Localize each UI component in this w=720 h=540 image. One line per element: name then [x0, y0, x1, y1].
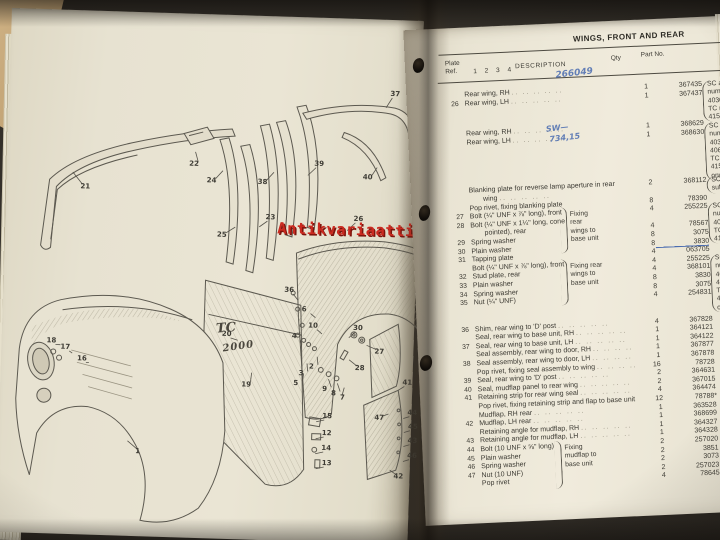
margin-note-line: numbered 4	[707, 87, 720, 97]
callout-42: 42	[393, 472, 403, 480]
description: Nut (10 UNF)	[481, 470, 523, 479]
plate-ref	[442, 97, 458, 98]
plate-ref	[457, 409, 473, 410]
part-no: 368630	[650, 129, 704, 138]
margin-note: SC annumb4030840300TC m41502onwa	[710, 254, 720, 313]
callout-leader-lines	[0, 8, 424, 540]
qty: 4	[631, 248, 655, 256]
plate-ref: 45	[459, 455, 475, 463]
margin-note-line: suffix 'C	[712, 184, 720, 193]
qty: 8	[631, 240, 655, 248]
plate-ref: 34	[451, 291, 467, 299]
plate-ref: 39	[455, 378, 471, 386]
qty: 2	[628, 180, 652, 188]
qty: 1	[635, 335, 659, 343]
description: Stud plate, rear	[472, 272, 520, 281]
qty: 1	[639, 404, 663, 412]
plate-ref: 30	[449, 248, 465, 256]
part-no: 254831	[657, 289, 711, 298]
callout-36: 36	[284, 286, 294, 294]
fixing-braces-layer: Fixingrearwings tobase unitFixing rearwi…	[403, 16, 719, 30]
qty: 4	[630, 205, 654, 213]
callout-8: 8	[331, 389, 336, 397]
margin-note-line: 4030881	[713, 218, 720, 227]
qty: 4	[632, 265, 656, 273]
qty: 4	[630, 222, 654, 230]
margin-note-line: TC m	[716, 287, 720, 296]
margin-note-line: TC models	[708, 104, 720, 114]
col-nums: 1 2 3 4	[473, 66, 514, 75]
margin-note-line: numb	[715, 262, 720, 271]
qty: 1	[636, 343, 660, 351]
description: Rear wing, RH	[466, 129, 512, 138]
col-description: DESCRIPTION	[515, 61, 566, 70]
qty: 8	[633, 283, 657, 291]
qty: 1	[640, 429, 664, 437]
col-qty: Qty	[611, 54, 621, 61]
plate-ref: 29	[449, 240, 465, 248]
plate-ref: 31	[450, 257, 466, 265]
callout-22: 22	[189, 160, 199, 168]
qty: 4	[633, 291, 657, 299]
callout-47: 47	[374, 414, 384, 422]
callout-18: 18	[46, 336, 56, 344]
callout-16: 16	[77, 354, 87, 362]
page-title: WINGS, FRONT AND REAR	[554, 29, 704, 45]
description: Spring washer	[481, 461, 526, 470]
plate-ref: 26	[443, 100, 459, 108]
description: Rear wing, RH	[464, 90, 510, 99]
qty: 4	[635, 318, 659, 326]
callout-25: 25	[217, 231, 227, 239]
plate-ref	[458, 434, 474, 435]
qty: 1	[624, 92, 648, 100]
plate-ref	[448, 210, 464, 211]
callout-40: 40	[363, 173, 373, 181]
margin-note-line: 4150259	[711, 162, 720, 172]
fixing-group: Fixing rearwings tobase unit	[560, 258, 604, 306]
qty: 1	[639, 412, 663, 420]
margin-note-line: number	[713, 210, 720, 219]
plate-ref: 28	[448, 223, 464, 231]
qty: 8	[631, 231, 655, 239]
qty: 2	[641, 455, 665, 463]
margin-note-line: 415025	[714, 234, 720, 243]
plate-ref: 47	[459, 472, 475, 480]
brace	[560, 259, 569, 305]
description: Spring washer	[471, 237, 516, 246]
brace	[560, 207, 569, 253]
margin-note-line: 40308	[716, 270, 720, 279]
plate-ref	[449, 236, 465, 237]
part-no	[653, 191, 707, 193]
qty: 2	[637, 369, 661, 377]
callout-46: 46	[407, 452, 417, 460]
col-plate-ref: Plate Ref.	[445, 60, 460, 76]
qty: 1	[626, 122, 650, 130]
plate-ref	[453, 340, 469, 341]
description: Nut (¼" UNF)	[474, 298, 516, 307]
callout-13: 13	[322, 459, 332, 467]
margin-note: SC modsuffix 'C	[706, 175, 720, 193]
qty: 2	[637, 378, 661, 386]
callout-43: 43	[407, 437, 417, 445]
qty: 12	[639, 395, 663, 403]
fixing-label: Fixing rearwings tobase unit	[570, 258, 604, 305]
plate-ref: 37	[454, 344, 470, 352]
callout-21: 21	[80, 182, 90, 190]
callout-9: 9	[322, 385, 327, 393]
tc-badge: TC	[216, 320, 237, 336]
plate-ref: 35	[452, 300, 468, 308]
plate-ref	[457, 417, 473, 418]
part-no: 367437	[648, 89, 702, 98]
qty: 1	[639, 421, 663, 429]
right-page: WINGS, FRONT AND REAR Plate Ref. 1 2 3 4…	[403, 16, 720, 526]
margin-note-line: 41502590B,	[708, 112, 720, 122]
plate-ref: 33	[451, 283, 467, 291]
callout-15: 15	[322, 412, 332, 420]
plate-ref: 38	[454, 361, 470, 369]
margin-note-line: numbered	[709, 129, 720, 139]
callout-3: 3	[299, 369, 304, 377]
plate-ref: 43	[458, 438, 474, 446]
description: Tapping plate	[472, 255, 514, 264]
margin-note: SC and Autnumbered 440308814E,TC models4…	[702, 79, 720, 122]
qty: 1	[636, 352, 660, 360]
margin-note-line: 40300815E,	[710, 137, 720, 147]
margin-note-line: SC an	[715, 254, 720, 263]
description: Rear wing, LH	[465, 98, 510, 107]
qty: 1	[624, 83, 648, 91]
qty	[629, 193, 653, 194]
plate-ref	[447, 202, 463, 203]
qty: 2	[640, 447, 664, 455]
callout-39: 39	[314, 160, 324, 168]
callout-17: 17	[60, 343, 70, 351]
plate-ref: 42	[457, 421, 473, 429]
plate-ref	[447, 193, 463, 194]
plate-ref: 36	[453, 326, 469, 334]
fixing-group: Fixingmudflap tobase unit	[554, 439, 598, 489]
book-photo: 2122242523383937402636610302728201942359…	[0, 0, 720, 540]
col-part-no: Part No.	[641, 51, 665, 59]
fixing-label-line: base unit	[571, 278, 603, 288]
description: Plain washer	[471, 246, 511, 255]
callout-14: 14	[321, 444, 331, 452]
plate-ref: 40	[456, 386, 472, 394]
description: Spring washer	[473, 289, 518, 298]
callout-38: 38	[258, 178, 268, 186]
plate-ref	[455, 374, 471, 375]
plate-ref	[460, 486, 476, 487]
left-page: 2122242523383937402636610302728201942359…	[0, 8, 424, 540]
qty: 4	[642, 472, 666, 480]
qty: 8	[629, 197, 653, 205]
plate-ref	[454, 357, 470, 358]
qty: 4	[638, 386, 662, 394]
callout-44: 44	[407, 409, 417, 417]
fixing-label: Fixingrearwings tobase unit	[570, 206, 600, 253]
brace	[554, 441, 563, 489]
plate-ref: 41	[456, 395, 472, 403]
margin-notes-layer: SC and Autnumbered 440308814E,TC models4…	[403, 16, 719, 30]
margin-note: SC and Anumbered40300815E,40600018E,TC m…	[704, 121, 720, 181]
qty: 16	[637, 361, 661, 369]
margin-note: SC andnumber4030881TC mo415025	[707, 201, 720, 244]
margin-note-line: 40308814E,	[708, 96, 720, 106]
fixing-label: Fixingmudflap tobase unit	[564, 439, 598, 488]
qty: 4	[632, 257, 656, 265]
part-no: 78645	[666, 470, 720, 479]
qty: 2	[640, 438, 664, 446]
plate-ref: 32	[450, 274, 466, 282]
description: Plain washer	[481, 453, 521, 462]
callout-28: 28	[355, 364, 365, 372]
leader-dots: .. .. .. .. ..	[591, 346, 636, 354]
margin-note-line: 40600018E,	[710, 146, 720, 156]
callout-7: 7	[340, 393, 345, 401]
description: wing	[469, 195, 498, 203]
margin-note-line: TC mode	[710, 154, 720, 164]
callout-30: 30	[353, 324, 363, 332]
margin-note-line: TC mo	[714, 226, 720, 235]
plate-ref	[444, 136, 460, 137]
plate-ref: 27	[448, 214, 464, 222]
callout-1: 1	[135, 447, 140, 455]
callout-4: 4	[292, 332, 297, 340]
plate-ref: 46	[459, 464, 475, 472]
description: Rear wing, LH	[466, 137, 511, 146]
margin-note-line: SC and A	[709, 121, 720, 131]
margin-note-line: SC mod	[711, 175, 720, 184]
description: Pop rivet	[482, 479, 510, 487]
fixing-label-line: base unit	[565, 460, 597, 470]
leader-dots	[615, 186, 629, 187]
callout-5: 5	[293, 379, 298, 387]
qty: 2	[641, 464, 665, 472]
leader-dots: .. .. .. .. ..	[595, 363, 637, 371]
qty: 1	[635, 326, 659, 334]
plate-ref	[450, 270, 466, 271]
callout-45: 45	[408, 423, 418, 431]
callout-23: 23	[265, 213, 275, 221]
plate-ref	[445, 145, 461, 146]
callout-6: 6	[302, 305, 307, 313]
callout-10: 10	[308, 321, 318, 329]
callout-37: 37	[390, 90, 400, 98]
fixing-group: Fixingrearwings tobase unit	[560, 206, 600, 254]
qty: 8	[633, 274, 657, 282]
callout-27: 27	[374, 348, 384, 356]
qty	[630, 219, 654, 220]
margin-note-line: SC and	[712, 201, 720, 210]
margin-note-line: 40300	[716, 278, 720, 287]
plate-ref: 44	[458, 447, 474, 455]
callout-12: 12	[322, 429, 332, 437]
description: Plain washer	[473, 281, 513, 290]
qty: 1	[626, 131, 650, 139]
part-no	[654, 216, 708, 218]
handwriting-layer: 266049SW—734,15	[403, 16, 719, 30]
callout-24: 24	[207, 176, 217, 184]
callout-19: 19	[241, 380, 251, 388]
callout-2: 2	[309, 363, 314, 371]
callout-41: 41	[402, 378, 412, 386]
fixing-label-line: base unit	[571, 235, 599, 245]
